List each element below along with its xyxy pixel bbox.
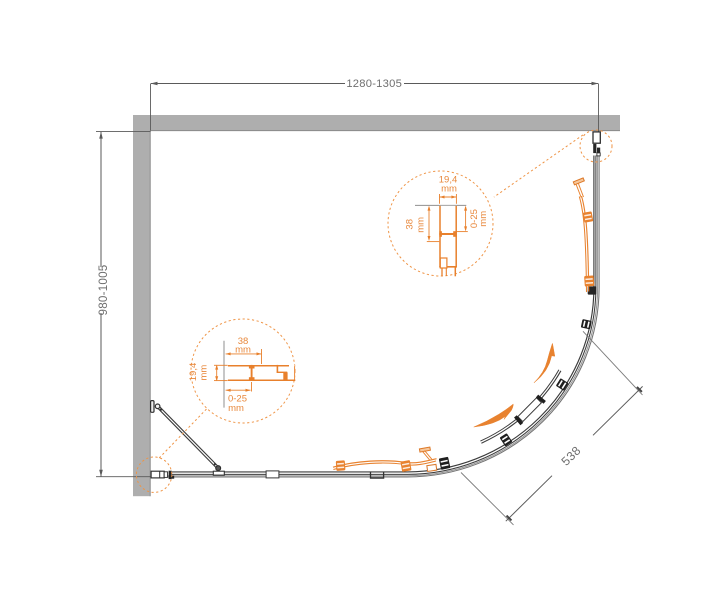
svg-text:1280-1305: 1280-1305: [346, 78, 402, 90]
svg-text:38: 38: [404, 219, 415, 230]
svg-text:mm: mm: [478, 211, 489, 227]
svg-text:980-1005: 980-1005: [97, 265, 110, 316]
svg-text:mm: mm: [235, 345, 251, 356]
svg-text:19,4: 19,4: [188, 363, 199, 382]
svg-text:mm: mm: [416, 217, 427, 233]
svg-text:mm: mm: [198, 365, 209, 381]
svg-text:mm: mm: [441, 183, 457, 194]
svg-text:mm: mm: [228, 403, 244, 414]
